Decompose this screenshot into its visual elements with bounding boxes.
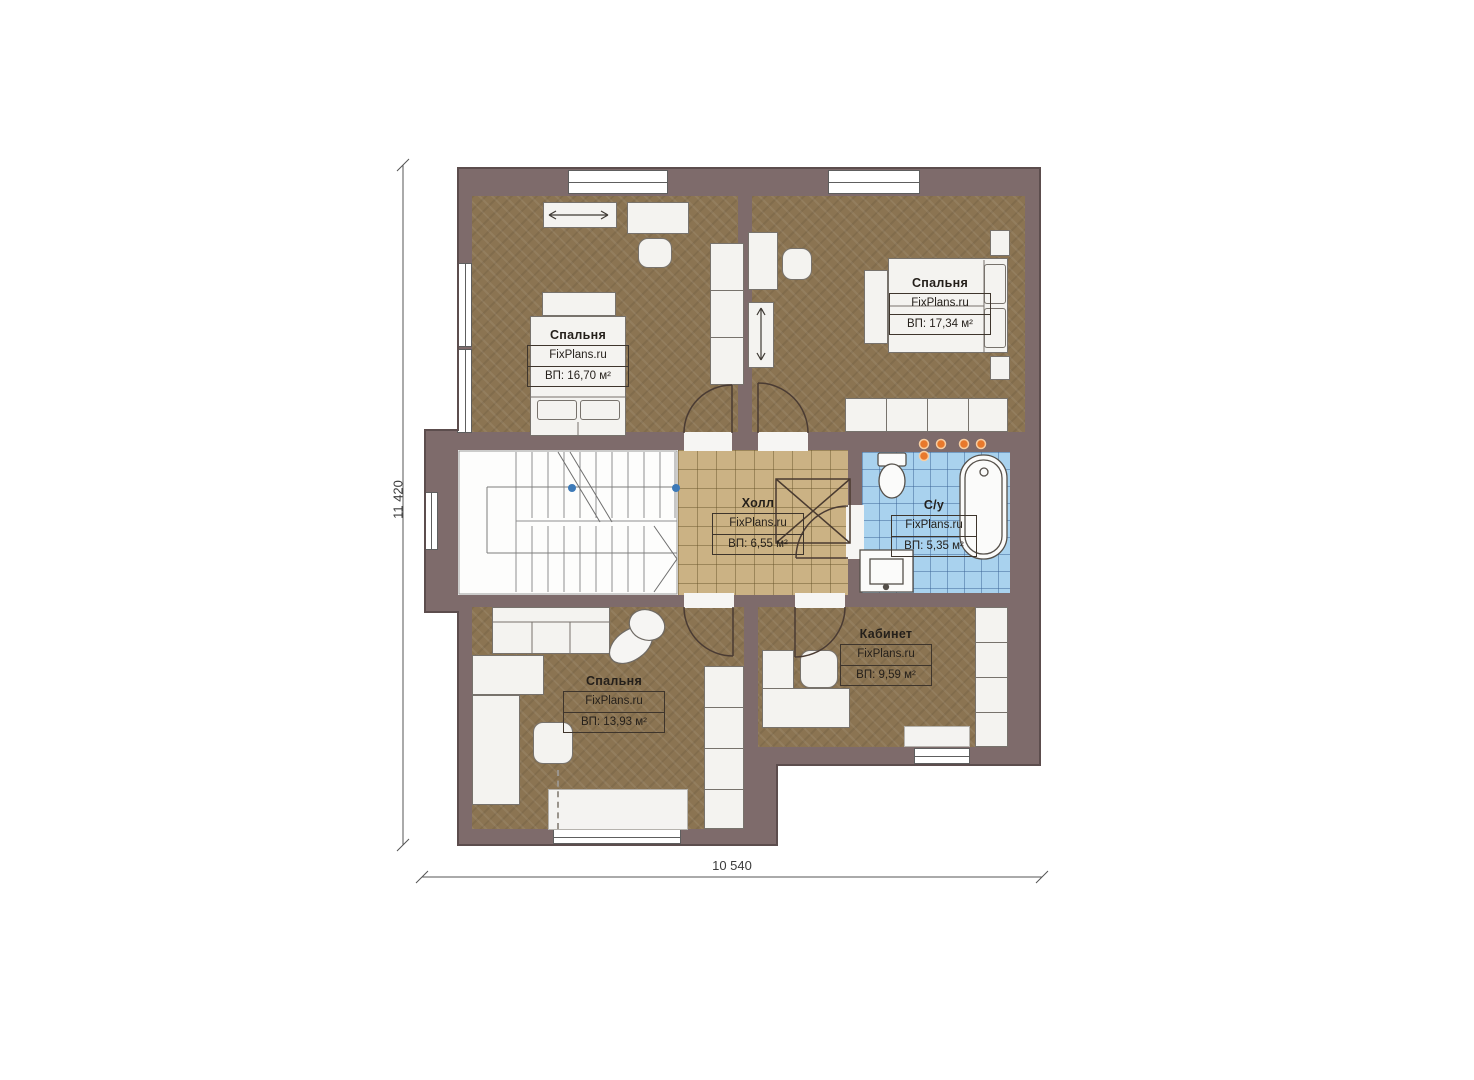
- brand-text: FixPlans.ru: [892, 516, 976, 537]
- desk-bedroom-tr: [748, 232, 778, 290]
- wardrobe-office: [975, 607, 1008, 747]
- doorway-bedroom-bottom-left: [684, 593, 734, 608]
- room-label-bathroom: С/у FixPlans.ru ВП: 5,35 м²: [891, 498, 977, 557]
- window-left-lower: [457, 349, 472, 433]
- sofa-bedroom-bl: [492, 607, 610, 654]
- room-area: ВП: 6,55 м²: [713, 535, 803, 555]
- floor-plan: Спальня FixPlans.ru ВП: 16,70 м² Спальня…: [0, 0, 1474, 1080]
- window-top-left: [568, 170, 668, 194]
- pillow-tl-1: [537, 400, 577, 420]
- doorway-bedroom-top-right: [758, 432, 808, 451]
- room-area: ВП: 17,34 м²: [890, 315, 990, 335]
- brand-text: FixPlans.ru: [890, 294, 990, 315]
- doorway-office: [795, 593, 845, 608]
- room-name: Спальня: [563, 674, 665, 688]
- room-area: ВП: 16,70 м²: [528, 367, 628, 387]
- window-niche-office: [904, 726, 970, 747]
- room-label-bedroom-tr: Спальня FixPlans.ru ВП: 17,34 м²: [889, 276, 991, 335]
- wardrobe-bedroom-tl: [710, 243, 744, 385]
- wardrobe-bedroom-tr: [845, 398, 1008, 432]
- room-label-hall: Холл FixPlans.ru ВП: 6,55 м²: [712, 496, 804, 555]
- nightstand-tr-top: [990, 230, 1010, 256]
- chair-bedroom-tr: [782, 248, 812, 280]
- desk-office-main: [762, 688, 850, 728]
- window-niche-bedroom-bl: [548, 789, 688, 830]
- dimension-vertical: 11 420: [391, 470, 406, 530]
- shelf-top: [543, 202, 617, 228]
- doorway-bedroom-top-left: [684, 432, 732, 451]
- desk-bedroom-bl-top: [472, 655, 544, 695]
- nightstand-tr-bottom: [990, 356, 1010, 380]
- room-staircase: [458, 450, 678, 595]
- window-top-right: [828, 170, 920, 194]
- bench-bedroom-tr: [864, 270, 888, 344]
- window-bottom-bedroom: [553, 829, 681, 844]
- room-name: Кабинет: [840, 627, 932, 641]
- wardrobe-bedroom-bl: [704, 666, 744, 829]
- room-label-bedroom-bl: Спальня FixPlans.ru ВП: 13,93 м²: [563, 674, 665, 733]
- room-area: ВП: 9,59 м²: [841, 666, 931, 686]
- room-label-bedroom-tl: Спальня FixPlans.ru ВП: 16,70 м²: [527, 328, 629, 387]
- closet-dashed-line: [557, 770, 559, 829]
- brand-text: FixPlans.ru: [841, 645, 931, 666]
- room-area: ВП: 5,35 м²: [892, 537, 976, 557]
- brand-text: FixPlans.ru: [713, 514, 803, 535]
- headboard-shelf-tl: [542, 292, 616, 316]
- room-label-office: Кабинет FixPlans.ru ВП: 9,59 м²: [840, 627, 932, 686]
- doorway-bathroom: [846, 505, 864, 559]
- dimension-horizontal: 10 540: [702, 858, 762, 873]
- brand-text: FixPlans.ru: [528, 346, 628, 367]
- window-left-upper: [457, 263, 472, 347]
- chair-office: [800, 650, 838, 688]
- desk-bedroom-bl-side: [472, 695, 520, 805]
- room-area: ВП: 13,93 м²: [564, 713, 664, 733]
- chair-bedroom-tl: [638, 238, 672, 268]
- room-name: Холл: [712, 496, 804, 510]
- room-name: С/у: [891, 498, 977, 512]
- room-name: Спальня: [889, 276, 991, 290]
- brand-text: FixPlans.ru: [564, 692, 664, 713]
- window-stair-bay: [424, 492, 438, 550]
- room-name: Спальня: [527, 328, 629, 342]
- window-bottom-office: [914, 748, 970, 764]
- desk-bedroom-tl: [627, 202, 689, 234]
- pillow-tl-2: [580, 400, 620, 420]
- shelf-bedroom-tr: [748, 302, 774, 368]
